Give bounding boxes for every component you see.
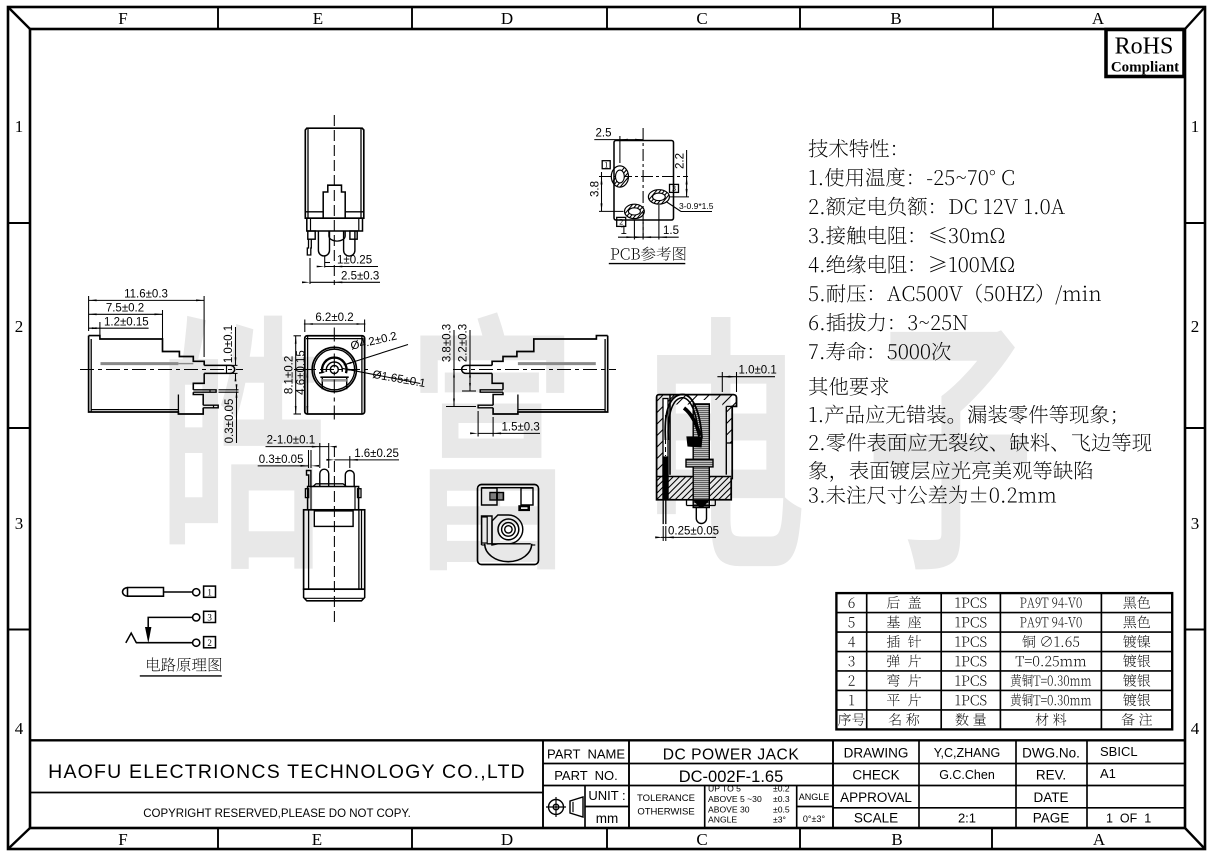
svg-text:2: 2 [15, 317, 24, 336]
svg-text:UP TO 5: UP TO 5 [708, 784, 741, 794]
svg-text:3.8: 3.8 [589, 181, 601, 197]
svg-text:2-1.0±0.1: 2-1.0±0.1 [267, 435, 316, 447]
svg-text:Ø1.65±0.1: Ø1.65±0.1 [371, 369, 426, 390]
svg-text:1: 1 [621, 225, 627, 237]
svg-text:1.2±0.15: 1.2±0.15 [104, 317, 149, 329]
svg-text:DWG.No.: DWG.No. [1022, 746, 1080, 761]
svg-text:G.C.Chen: G.C.Chen [939, 768, 995, 782]
svg-text:2.2±0.3: 2.2±0.3 [458, 324, 470, 362]
svg-text:HAOFU ELECTRIONCS TECHNOLOGY C: HAOFU ELECTRIONCS TECHNOLOGY CO.,LTD [48, 761, 526, 783]
svg-text:3-0.9*1.5: 3-0.9*1.5 [679, 201, 714, 211]
svg-text:2:1: 2:1 [958, 811, 976, 826]
svg-text:DRAWING: DRAWING [844, 746, 909, 761]
svg-text:ANGLE: ANGLE [799, 792, 830, 802]
svg-text:PART NAME: PART NAME [547, 747, 625, 762]
svg-text:3: 3 [207, 613, 212, 623]
svg-text:±0.5: ±0.5 [773, 804, 790, 814]
svg-text:0.25±0.05: 0.25±0.05 [668, 526, 719, 538]
svg-text:E: E [312, 830, 322, 849]
svg-text:7.5±0.2: 7.5±0.2 [106, 303, 144, 315]
svg-text:DC POWER JACK: DC POWER JACK [663, 747, 800, 764]
svg-text:APPROVAL: APPROVAL [840, 790, 912, 805]
svg-text:±3°: ±3° [773, 815, 786, 825]
svg-text:B: B [891, 830, 902, 849]
svg-text:0.3±0.05: 0.3±0.05 [259, 454, 304, 466]
svg-text:±0.3: ±0.3 [773, 794, 790, 804]
svg-text:1: 1 [207, 587, 212, 597]
svg-text:1 OF 1: 1 OF 1 [1106, 812, 1151, 826]
svg-text:1: 1 [1191, 117, 1200, 136]
svg-text:2: 2 [207, 638, 212, 648]
svg-text:REV.: REV. [1036, 768, 1066, 783]
svg-text:1±0.25: 1±0.25 [337, 255, 372, 267]
svg-text:0°±3°: 0°±3° [803, 814, 826, 824]
svg-text:4: 4 [1191, 719, 1200, 738]
svg-text:Y,C,ZHANG: Y,C,ZHANG [934, 746, 1000, 760]
svg-text:±0.2: ±0.2 [773, 784, 790, 794]
svg-text:1.0±0.1: 1.0±0.1 [739, 365, 777, 377]
svg-text:1.0±0.1: 1.0±0.1 [223, 325, 235, 363]
svg-text:OTHERWISE: OTHERWISE [637, 807, 694, 818]
svg-text:PAGE: PAGE [1033, 811, 1070, 826]
svg-text:1.6±0.25: 1.6±0.25 [354, 448, 399, 460]
svg-text:4: 4 [15, 719, 24, 738]
svg-text:2.5: 2.5 [596, 128, 612, 140]
svg-text:6.2±0.2: 6.2±0.2 [315, 312, 353, 324]
svg-text:2.2: 2.2 [674, 153, 686, 169]
svg-text:C: C [696, 830, 707, 849]
svg-text:ANGLE: ANGLE [708, 815, 737, 825]
svg-text:A1: A1 [1100, 766, 1116, 781]
svg-text:ABOVE 5 ~30: ABOVE 5 ~30 [708, 794, 762, 804]
svg-text:3: 3 [1191, 514, 1200, 533]
svg-text:F: F [118, 830, 127, 849]
svg-text:ABOVE 30: ABOVE 30 [708, 804, 750, 814]
svg-text:11.6±0.3: 11.6±0.3 [124, 289, 168, 301]
svg-text:C: C [696, 9, 707, 28]
svg-text:DATE: DATE [1033, 790, 1068, 805]
svg-text:CHECK: CHECK [852, 768, 899, 783]
svg-text:1.5: 1.5 [663, 225, 679, 237]
svg-text:B: B [890, 9, 901, 28]
svg-text:TOLERANCE: TOLERANCE [637, 793, 695, 804]
svg-text:E: E [313, 9, 323, 28]
svg-text:PART NO.: PART NO. [554, 768, 618, 783]
svg-text:D: D [501, 830, 513, 849]
svg-text:Ø4.2±0.2: Ø4.2±0.2 [349, 330, 398, 352]
svg-text:D: D [501, 9, 513, 28]
svg-text:2.5±0.3: 2.5±0.3 [341, 270, 379, 282]
svg-text:4.6±0.15: 4.6±0.15 [295, 350, 307, 395]
svg-text:A: A [1092, 9, 1105, 28]
svg-text:mm: mm [596, 811, 619, 826]
svg-text:3: 3 [15, 514, 24, 533]
svg-text:1: 1 [15, 117, 24, 136]
svg-text:0.3±0.05: 0.3±0.05 [224, 399, 236, 444]
svg-text:3: 3 [672, 184, 676, 193]
svg-text:1: 1 [604, 160, 608, 169]
svg-text:3.8±0.3: 3.8±0.3 [442, 324, 454, 362]
svg-text:1.5±0.3: 1.5±0.3 [502, 422, 540, 434]
svg-text:8.1±0.2: 8.1±0.2 [284, 356, 296, 394]
svg-text:SBICL: SBICL [1100, 744, 1138, 759]
svg-text:COPYRIGHT RESERVED,PLEASE DO N: COPYRIGHT RESERVED,PLEASE DO NOT COPY. [143, 808, 411, 820]
svg-text:A: A [1093, 830, 1106, 849]
svg-text:F: F [118, 9, 127, 28]
svg-text:Compliant: Compliant [1111, 60, 1179, 76]
svg-text:RoHS: RoHS [1115, 34, 1174, 60]
svg-text:2: 2 [1191, 317, 1200, 336]
svg-text:SCALE: SCALE [854, 811, 898, 826]
svg-text:UNIT :: UNIT : [588, 788, 625, 803]
